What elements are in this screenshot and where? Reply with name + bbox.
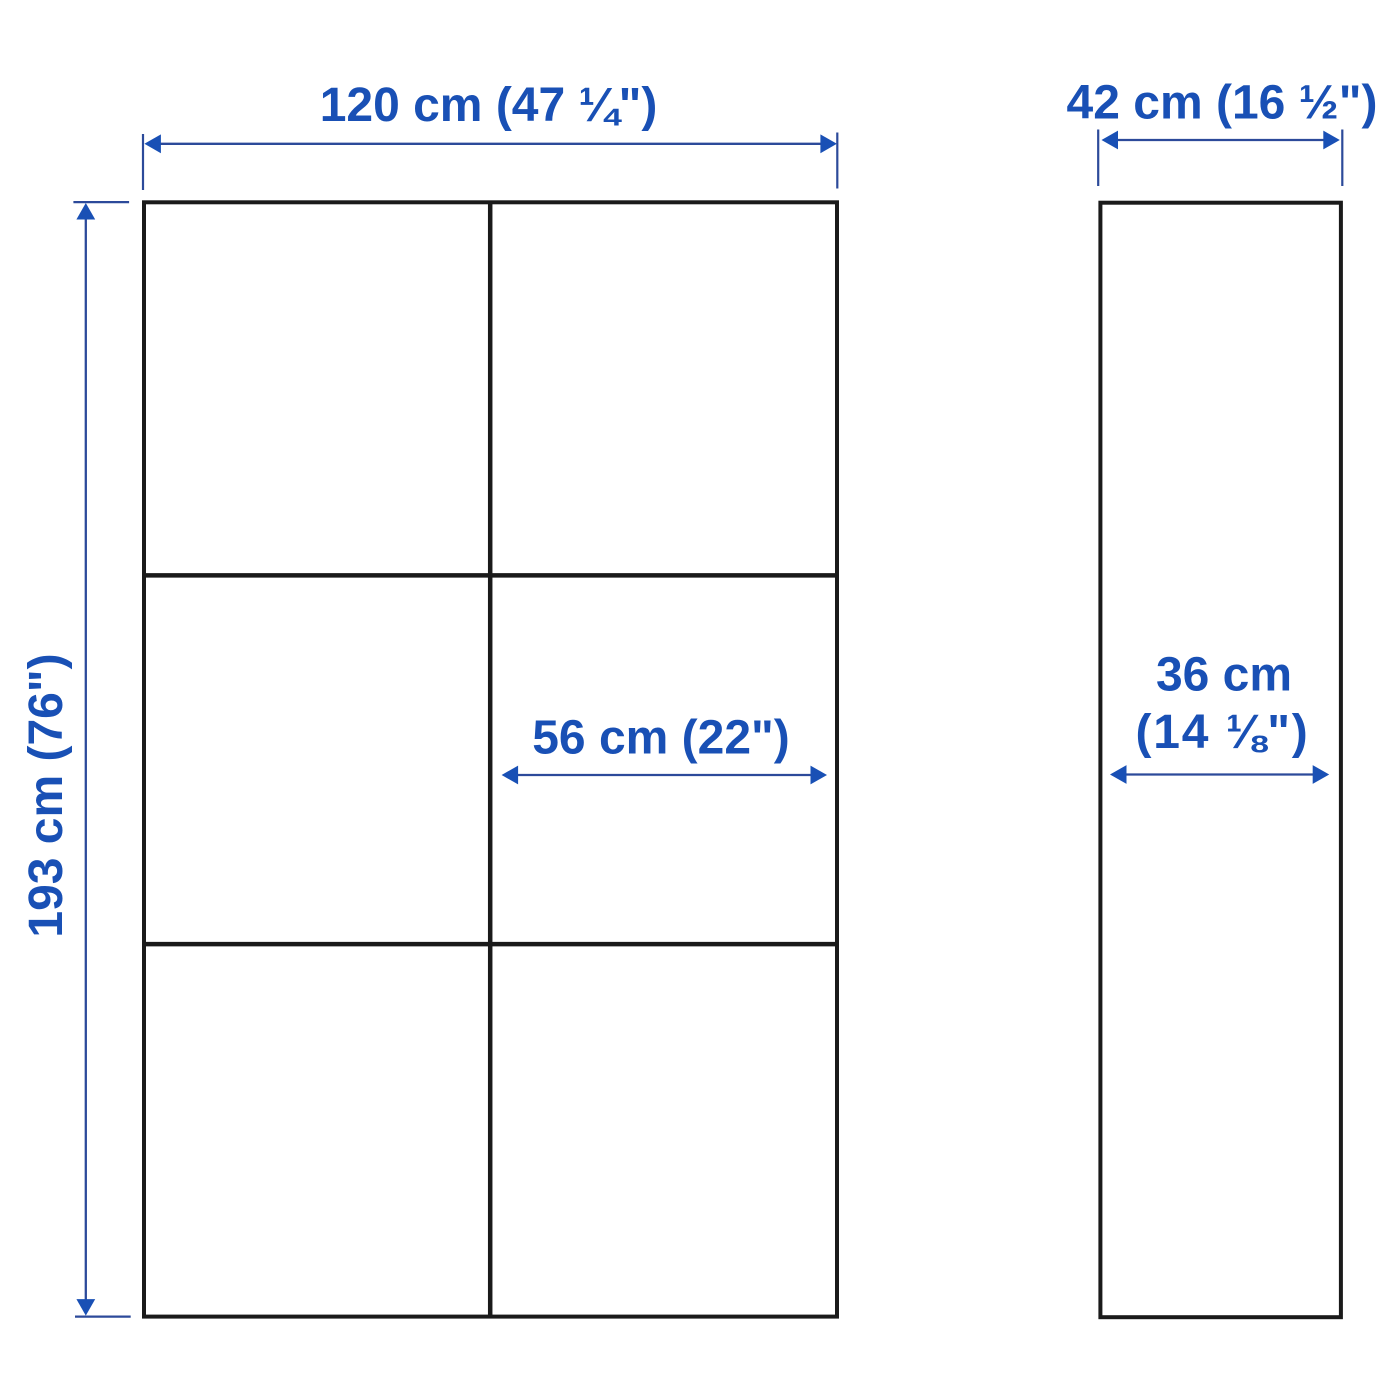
svg-text:193 cm (76"): 193 cm (76") <box>20 653 73 937</box>
svg-text:56 cm (22"): 56 cm (22") <box>532 712 790 765</box>
svg-text:42 cm (16 ½"): 42 cm (16 ½") <box>1067 77 1378 130</box>
svg-text:36 cm: 36 cm <box>1156 649 1292 702</box>
svg-text:120 cm (47 ¼"): 120 cm (47 ¼") <box>320 79 658 132</box>
svg-text:(14 ⅛"): (14 ⅛") <box>1135 706 1309 759</box>
